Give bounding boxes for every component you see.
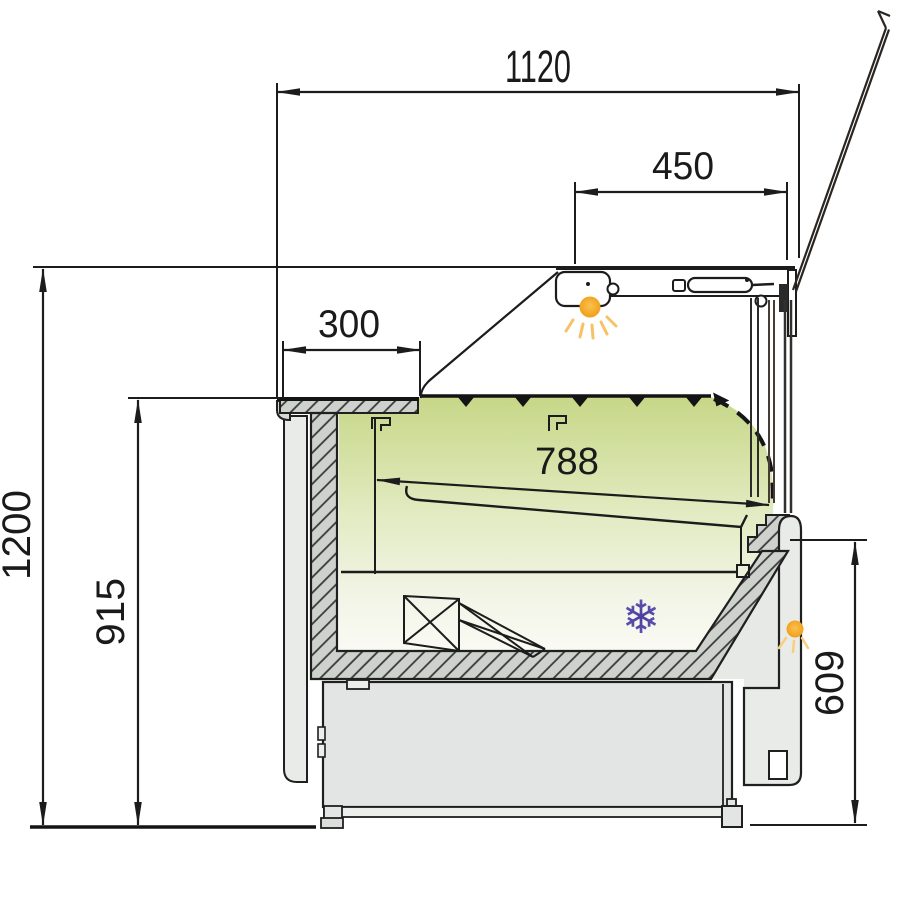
dim-lid-glass-width: 450: [652, 145, 714, 188]
dim-worktop-height: 915: [89, 578, 133, 646]
dim-front-height: 609: [808, 650, 852, 716]
front-panel-notch: [769, 751, 787, 779]
right-foot: [722, 806, 742, 827]
side-cladding-panel: [284, 416, 307, 782]
kick-rail: [324, 807, 724, 817]
base-cabinet: [318, 680, 742, 828]
light-bulb-icon: [580, 297, 601, 318]
worktop-slab: [280, 400, 418, 413]
dim-display-deck-depth: 788: [535, 441, 599, 483]
technical-drawing-canvas: ❄: [0, 0, 900, 900]
light-bulb-icon: [787, 621, 804, 638]
display-case-cross-section: ❄: [0, 0, 900, 900]
strut-mount: [673, 280, 685, 291]
hinge-bracket: [779, 284, 788, 312]
dim-overall-height: 1200: [0, 490, 39, 580]
snowflake-icon: ❄: [622, 590, 661, 644]
dim-worktop-depth: 300: [318, 303, 380, 346]
gas-strut: [688, 278, 752, 292]
dim-overall-width: 1120: [505, 41, 571, 92]
left-foot: [321, 818, 343, 828]
